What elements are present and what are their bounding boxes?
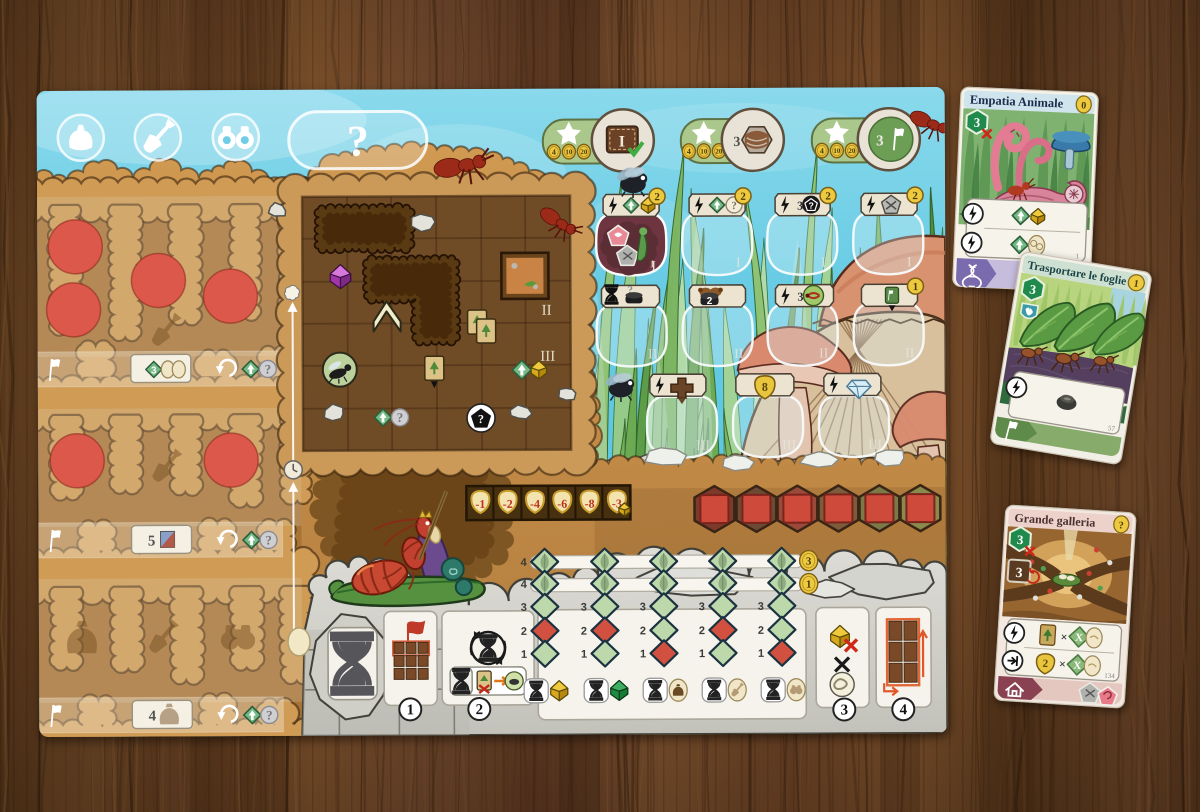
svg-text:II: II bbox=[819, 347, 829, 362]
svg-text:1: 1 bbox=[699, 648, 705, 660]
svg-text:3: 3 bbox=[640, 601, 646, 613]
svg-text:I: I bbox=[736, 256, 741, 271]
svg-text:4: 4 bbox=[552, 148, 556, 157]
svg-text:1: 1 bbox=[806, 579, 812, 591]
svg-text:×: × bbox=[1060, 630, 1068, 644]
svg-text:2: 2 bbox=[758, 625, 764, 637]
svg-text:4: 4 bbox=[820, 146, 824, 155]
svg-text:3: 3 bbox=[973, 115, 981, 130]
svg-text:1: 1 bbox=[640, 648, 646, 660]
svg-text:20: 20 bbox=[715, 148, 723, 156]
svg-text:X: X bbox=[1073, 660, 1082, 672]
svg-text:5: 5 bbox=[148, 533, 156, 549]
svg-text:-6: -6 bbox=[557, 497, 567, 511]
svg-text:×: × bbox=[1059, 657, 1067, 671]
svg-text:?: ? bbox=[397, 410, 404, 425]
svg-text:4: 4 bbox=[687, 147, 691, 156]
svg-text:I: I bbox=[651, 259, 656, 274]
svg-text:1: 1 bbox=[407, 702, 415, 718]
svg-text:1: 1 bbox=[581, 649, 587, 661]
svg-text:3: 3 bbox=[841, 702, 849, 718]
svg-text:1: 1 bbox=[521, 649, 527, 661]
svg-text:?: ? bbox=[265, 532, 272, 547]
svg-text:4: 4 bbox=[900, 702, 908, 718]
svg-text:2: 2 bbox=[699, 625, 705, 637]
svg-text:134: 134 bbox=[1104, 672, 1115, 681]
svg-text:?: ? bbox=[347, 117, 369, 166]
svg-text:?: ? bbox=[1118, 520, 1124, 531]
svg-text:20: 20 bbox=[580, 148, 588, 156]
svg-text:II: II bbox=[734, 347, 744, 362]
svg-text:II: II bbox=[905, 346, 915, 361]
svg-text:0: 0 bbox=[1081, 100, 1086, 111]
svg-text:-1: -1 bbox=[475, 497, 485, 511]
svg-text:3: 3 bbox=[521, 602, 527, 614]
svg-text:II: II bbox=[648, 347, 658, 362]
svg-text:X: X bbox=[1075, 632, 1084, 644]
svg-text:4: 4 bbox=[149, 708, 157, 724]
svg-text:3: 3 bbox=[151, 365, 157, 376]
svg-text:4: 4 bbox=[521, 579, 528, 591]
svg-text:3: 3 bbox=[733, 135, 740, 150]
svg-text:III: III bbox=[868, 438, 882, 453]
svg-text:2: 2 bbox=[825, 191, 831, 203]
svg-text:3: 3 bbox=[581, 602, 587, 614]
svg-text:?: ? bbox=[808, 201, 814, 211]
svg-text:I: I bbox=[821, 256, 826, 271]
svg-text:2: 2 bbox=[912, 190, 918, 202]
svg-text:-2: -2 bbox=[503, 497, 513, 511]
svg-text:2: 2 bbox=[654, 191, 660, 203]
svg-text:3: 3 bbox=[1015, 566, 1023, 581]
svg-text:10: 10 bbox=[565, 148, 573, 156]
svg-text:2: 2 bbox=[740, 191, 746, 203]
svg-text:8: 8 bbox=[762, 380, 768, 394]
svg-text:4: 4 bbox=[521, 557, 528, 569]
svg-text:1: 1 bbox=[758, 648, 764, 660]
svg-text:?: ? bbox=[478, 412, 484, 426]
svg-text:3: 3 bbox=[758, 601, 764, 613]
svg-text:I: I bbox=[907, 255, 912, 270]
svg-text:-8: -8 bbox=[585, 497, 595, 511]
svg-text:2: 2 bbox=[707, 296, 713, 307]
svg-text:10: 10 bbox=[700, 148, 708, 156]
svg-text:?: ? bbox=[731, 200, 737, 212]
svg-text:1: 1 bbox=[913, 281, 919, 293]
svg-text:?: ? bbox=[266, 707, 273, 722]
svg-text:III: III bbox=[696, 439, 710, 454]
svg-text:2: 2 bbox=[476, 702, 484, 718]
svg-text:II: II bbox=[542, 303, 552, 319]
svg-text:10: 10 bbox=[833, 147, 841, 155]
svg-text:20: 20 bbox=[848, 147, 856, 155]
svg-text:3: 3 bbox=[806, 556, 812, 568]
svg-text:III: III bbox=[782, 438, 796, 453]
svg-text:3: 3 bbox=[797, 290, 803, 304]
svg-text:2: 2 bbox=[581, 626, 587, 638]
svg-text:3: 3 bbox=[699, 601, 705, 613]
svg-text:2: 2 bbox=[521, 626, 527, 638]
svg-text:-4: -4 bbox=[530, 497, 540, 511]
svg-text:2: 2 bbox=[640, 625, 646, 637]
svg-text:?: ? bbox=[265, 361, 272, 376]
svg-text:3: 3 bbox=[876, 133, 884, 149]
svg-text:III: III bbox=[540, 349, 555, 365]
svg-text:I: I bbox=[619, 133, 625, 150]
